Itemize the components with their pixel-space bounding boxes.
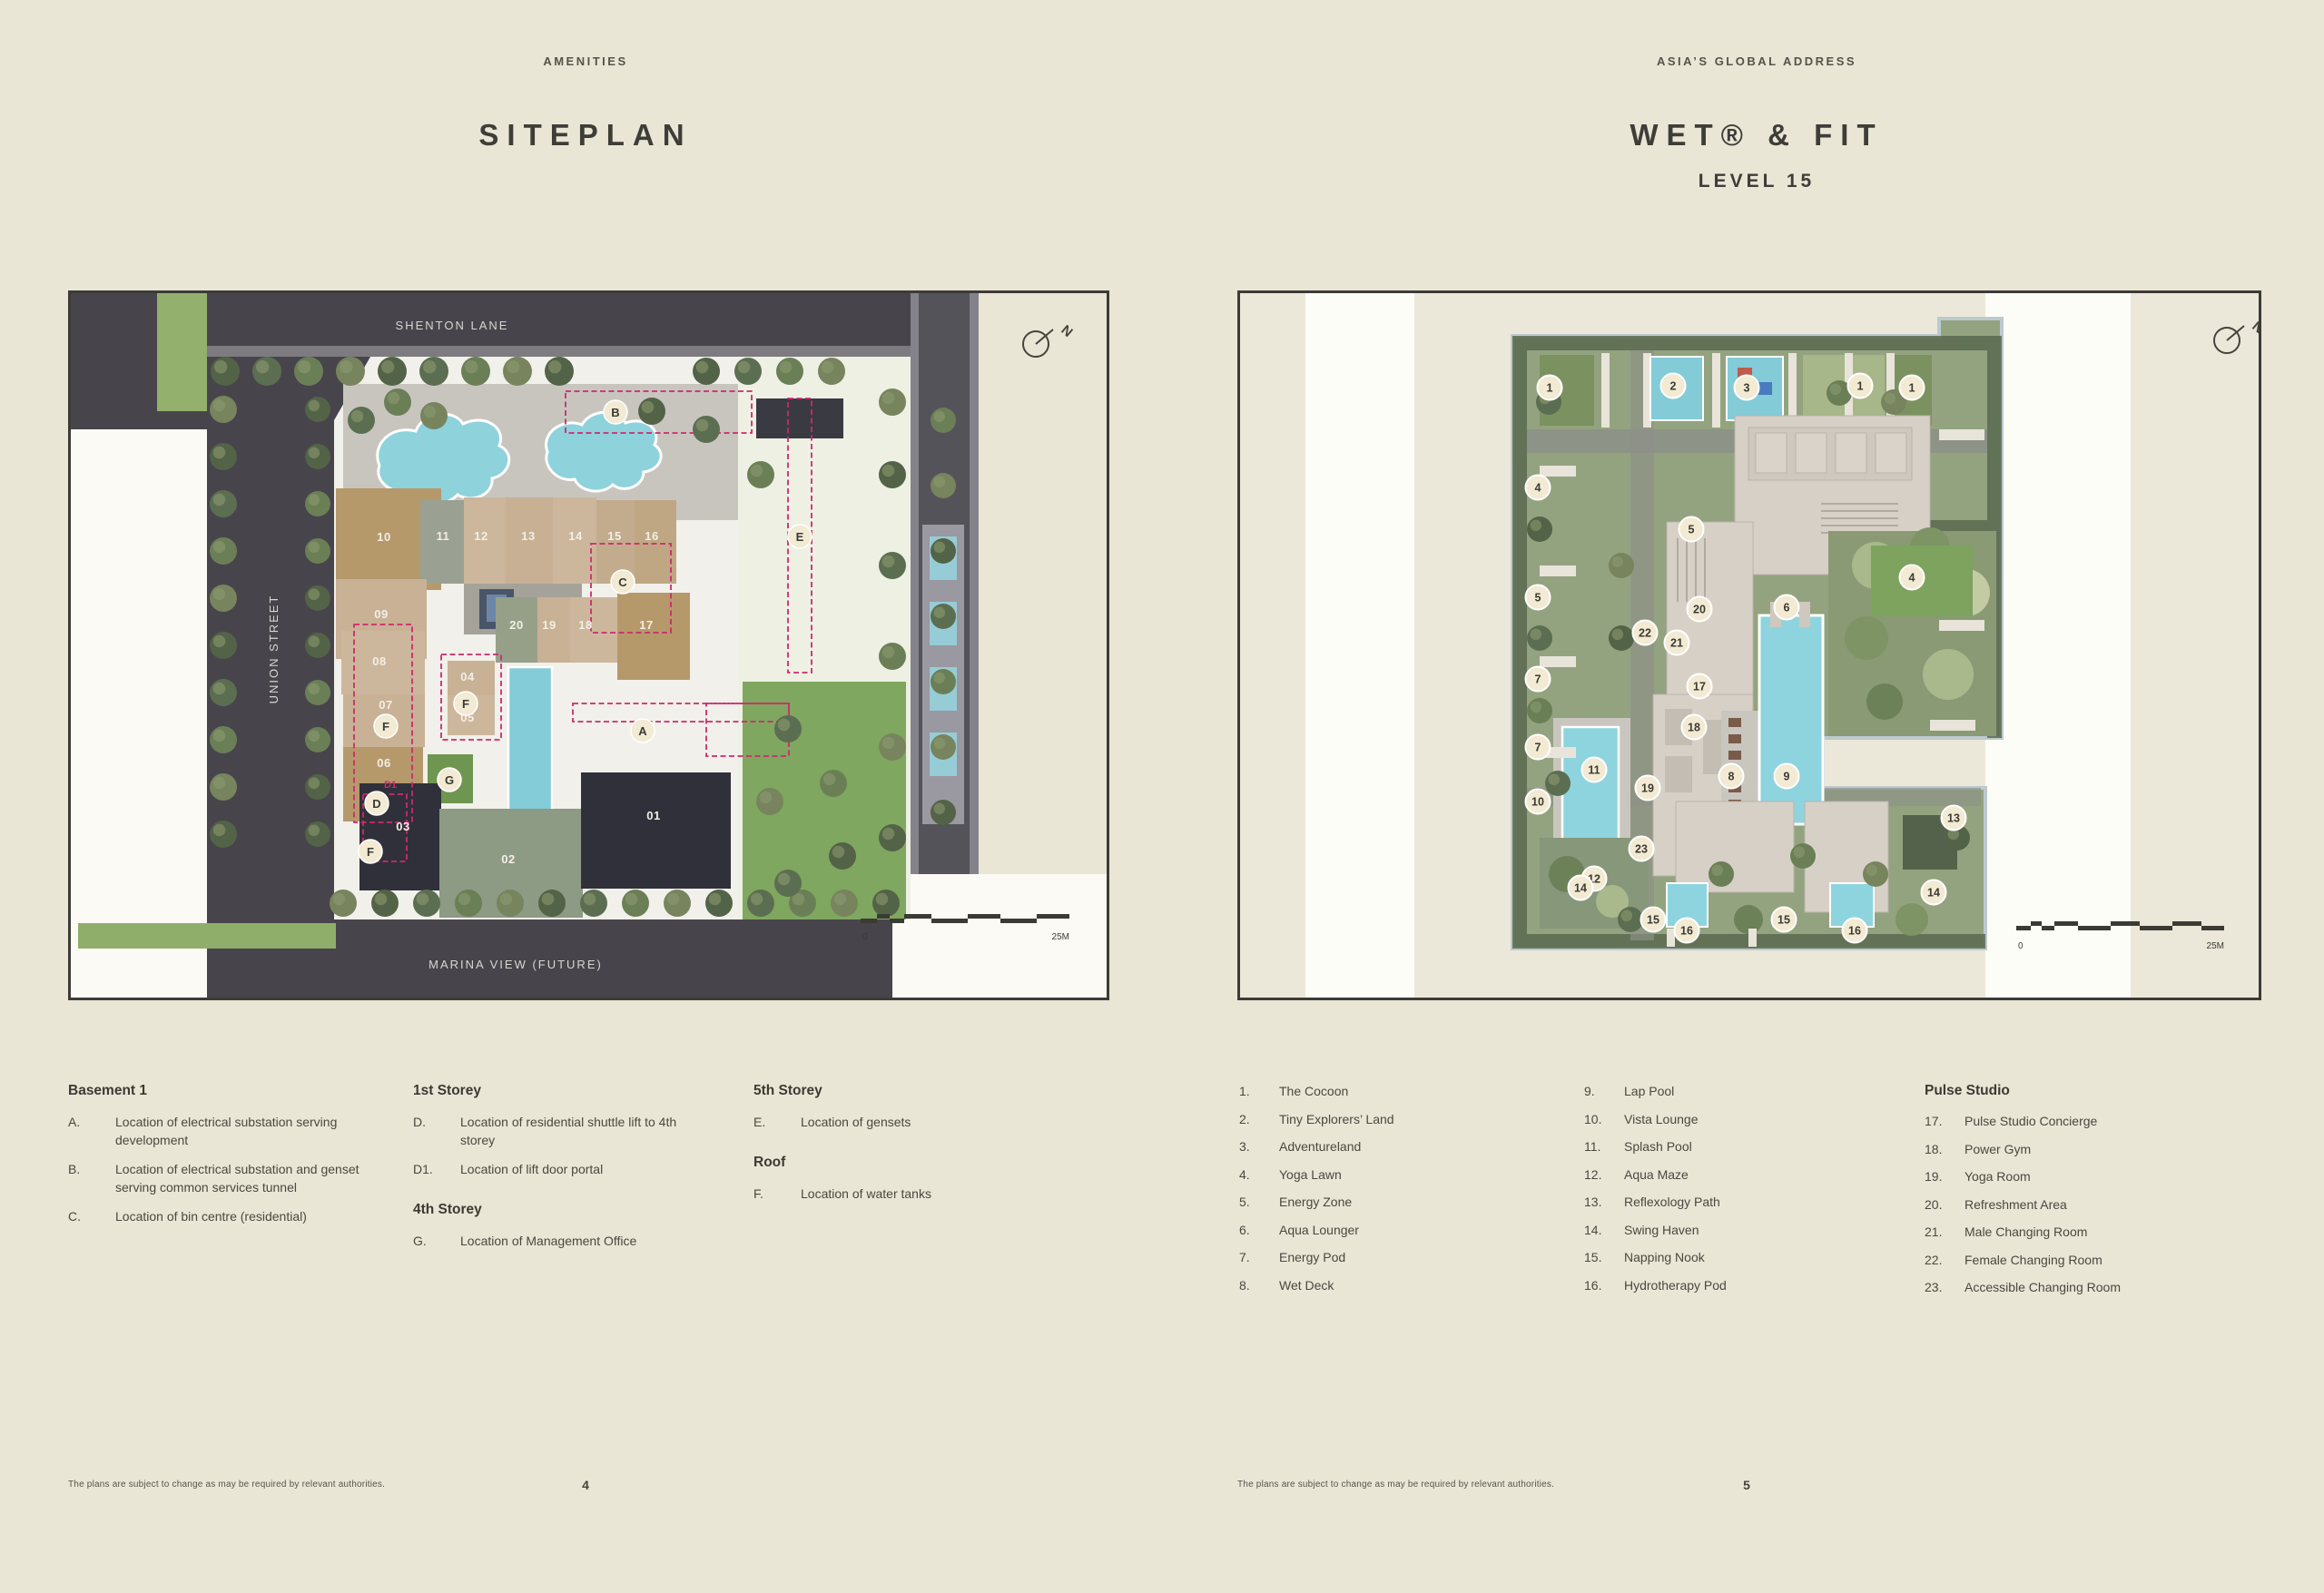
unit-number-label: D1: [384, 780, 397, 791]
tree-icon: [210, 585, 237, 612]
tree-icon: [210, 632, 237, 659]
legend-item-key: 5.: [1239, 1194, 1279, 1210]
legend-item-key: G.: [413, 1232, 460, 1250]
legend-item-text: Location of Management Office: [460, 1232, 713, 1250]
legend-item-key: 21.: [1925, 1224, 1965, 1240]
legend-item: 11.Splash Pool: [1584, 1138, 1897, 1155]
tree-icon: [931, 538, 956, 564]
legend-item-key: D.: [413, 1113, 460, 1149]
legend-item: 6.Aqua Lounger: [1239, 1222, 1552, 1238]
legend-item: 16.Hydrotherapy Pod: [1584, 1277, 1897, 1293]
svg-text:F: F: [462, 697, 469, 711]
tree-icon: [820, 770, 847, 797]
legend-item-key: 15.: [1584, 1249, 1624, 1265]
tree-icon: [879, 733, 906, 761]
legend-item: 13.Reflexology Path: [1584, 1194, 1897, 1210]
tree-icon: [210, 726, 237, 753]
svg-text:C: C: [618, 575, 627, 589]
legend-item-key: 2.: [1239, 1111, 1279, 1127]
tree-icon: [879, 388, 906, 416]
tree-icon: [774, 870, 802, 897]
amenity-marker-16: 16: [1843, 919, 1867, 943]
tree-icon: [252, 357, 281, 386]
location-marker-F: F: [359, 840, 382, 863]
tree-icon: [931, 669, 956, 694]
svg-text:4: 4: [1909, 572, 1915, 585]
legend-item-text: Location of residential shuttle lift to …: [460, 1113, 713, 1149]
tree-icon: [664, 890, 691, 917]
svg-text:6: 6: [1784, 602, 1790, 615]
amenities-legend-column-2: 9.Lap Pool10.Vista Lounge11.Splash Pool1…: [1584, 1083, 1897, 1317]
tree-icon: [305, 727, 330, 752]
amenity-marker-16: 16: [1675, 919, 1699, 943]
tree-icon: [210, 821, 237, 848]
legend-item-key: 6.: [1239, 1222, 1279, 1238]
legend-item: 9.Lap Pool: [1584, 1083, 1897, 1099]
legend-item-text: Splash Pool: [1624, 1138, 1692, 1155]
amenities-legend-column-3: Pulse Studio17.Pulse Studio Concierge18.…: [1925, 1083, 2260, 1319]
tree-icon: [1863, 861, 1888, 887]
tree-icon: [705, 890, 733, 917]
unit-number-label: 03: [396, 820, 409, 833]
amenity-marker-5: 5: [1526, 585, 1551, 610]
unit-number-label: 14: [568, 529, 583, 543]
legend-item-text: Reflexology Path: [1624, 1194, 1720, 1210]
tree-icon: [294, 357, 323, 386]
legend-item-key: 16.: [1584, 1277, 1624, 1293]
unit-number-label: 20: [509, 618, 523, 632]
tree-icon: [210, 537, 237, 565]
amenity-marker-17: 17: [1688, 674, 1712, 699]
svg-text:14: 14: [1574, 882, 1587, 895]
legend-item-text: Napping Nook: [1624, 1249, 1705, 1265]
legend-item: 8.Wet Deck: [1239, 1277, 1552, 1293]
tree-icon: [348, 407, 375, 434]
legend-heading: Pulse Studio: [1925, 1083, 2260, 1099]
svg-text:17: 17: [1693, 681, 1706, 693]
tree-icon: [210, 773, 237, 801]
unit-number-label: 10: [377, 530, 390, 544]
tree-icon: [879, 552, 906, 579]
tree-icon: [931, 734, 956, 760]
tree-icon: [1790, 843, 1816, 869]
tree-icon: [461, 357, 490, 386]
legend-item-text: Yoga Lawn: [1279, 1166, 1342, 1183]
legend-block: RoofF.Location of water tanks: [753, 1155, 1026, 1203]
svg-text:5: 5: [1689, 524, 1695, 536]
legend-item-key: 19.: [1925, 1168, 1965, 1185]
amenity-marker-21: 21: [1665, 631, 1689, 655]
tree-icon: [693, 416, 720, 443]
legend-item: 5.Energy Zone: [1239, 1194, 1552, 1210]
legend-item-text: Energy Pod: [1279, 1249, 1345, 1265]
svg-text:1: 1: [1909, 382, 1915, 395]
legend-item: 3.Adventureland: [1239, 1138, 1552, 1155]
legend-item-key: 18.: [1925, 1141, 1965, 1157]
location-marker-G: G: [438, 768, 461, 792]
amenity-marker-8: 8: [1719, 764, 1744, 789]
amenity-marker-18: 18: [1682, 715, 1707, 740]
scale-label-end: 25M: [1052, 932, 1069, 942]
legend-item: 14.Swing Haven: [1584, 1222, 1897, 1238]
amenity-marker-22: 22: [1633, 621, 1658, 645]
tree-icon: [1527, 516, 1552, 542]
tree-icon: [1545, 771, 1571, 796]
tree-icon: [1527, 698, 1552, 723]
tree-icon: [747, 461, 774, 488]
legend-item: 22.Female Changing Room: [1925, 1252, 2260, 1268]
legend-item-text: Swing Haven: [1624, 1222, 1699, 1238]
legend-item-key: 8.: [1239, 1277, 1279, 1293]
tree-icon: [378, 357, 407, 386]
legend-heading: Roof: [753, 1155, 1026, 1171]
legend-block: 1st StoreyD.Location of residential shut…: [413, 1083, 713, 1178]
unit-number-label: 15: [607, 529, 621, 543]
location-marker-D: D: [365, 792, 389, 815]
svg-text:1: 1: [1857, 380, 1864, 393]
legend-item-key: 10.: [1584, 1111, 1624, 1127]
unit-number-label: 07: [379, 698, 392, 712]
svg-text:F: F: [382, 720, 389, 733]
unit-number-label: 19: [542, 618, 556, 632]
legend-item-text: Yoga Room: [1965, 1168, 2031, 1185]
tree-icon: [210, 679, 237, 706]
left-footnote: The plans are subject to change as may b…: [68, 1480, 385, 1490]
right-footnote: The plans are subject to change as may b…: [1237, 1480, 1554, 1490]
amenity-marker-1: 1: [1538, 376, 1562, 400]
amenity-marker-20: 20: [1688, 597, 1712, 622]
tree-icon: [693, 358, 720, 385]
amenity-marker-6: 6: [1775, 595, 1799, 620]
right-page-subtitle: LEVEL 15: [1393, 171, 2120, 192]
legend-item-key: 12.: [1584, 1166, 1624, 1183]
legend-item: B.Location of electrical substation and …: [68, 1160, 381, 1196]
tree-icon: [1609, 625, 1634, 651]
svg-text:15: 15: [1777, 914, 1790, 927]
legend-item: C.Location of bin centre (residential): [68, 1207, 381, 1225]
tree-icon: [774, 715, 802, 742]
legend-item: 12.Aqua Maze: [1584, 1166, 1897, 1183]
tree-icon: [872, 890, 900, 917]
svg-text:19: 19: [1641, 782, 1654, 795]
tree-icon: [931, 408, 956, 433]
legend-heading: 1st Storey: [413, 1083, 713, 1099]
legend-item: 17.Pulse Studio Concierge: [1925, 1113, 2260, 1129]
siteplan-legend-column-2: 1st StoreyD.Location of residential shut…: [413, 1083, 713, 1273]
legend-item: 10.Vista Lounge: [1584, 1111, 1897, 1127]
legend-heading: Basement 1: [68, 1083, 381, 1099]
tree-icon: [210, 396, 237, 423]
tree-icon: [1709, 861, 1734, 887]
amenity-marker-19: 19: [1636, 776, 1660, 801]
tree-icon: [455, 890, 482, 917]
unit-number-label: 18: [578, 618, 592, 632]
legend-item-text: Aqua Maze: [1624, 1166, 1689, 1183]
location-marker-F: F: [374, 714, 398, 738]
legend-item: D1.Location of lift door portal: [413, 1160, 713, 1178]
legend-item-text: Location of gensets: [801, 1113, 1026, 1131]
amenity-marker-1: 1: [1900, 376, 1925, 400]
legend-item: 2.Tiny Explorers’ Land: [1239, 1111, 1552, 1127]
siteplan-legend-column-3: 5th StoreyE.Location of gensetsRoofF.Loc…: [753, 1083, 1026, 1226]
svg-text:G: G: [445, 773, 454, 787]
right-page-title: WET® & FIT: [1393, 118, 2120, 152]
tree-icon: [305, 397, 330, 422]
tree-icon: [747, 890, 774, 917]
tree-icon: [538, 890, 566, 917]
legend-item: 15.Napping Nook: [1584, 1249, 1897, 1265]
tree-icon: [829, 842, 856, 870]
legend-item-key: 11.: [1584, 1138, 1624, 1155]
legend-item: E.Location of gensets: [753, 1113, 1026, 1131]
legend-item-key: E.: [753, 1113, 801, 1131]
siteplan-map: SHENTON LANE UNION STREET MARINA VIEW (F…: [68, 290, 1109, 1000]
legend-item-key: 7.: [1239, 1249, 1279, 1265]
tree-icon: [734, 358, 762, 385]
legend-item-text: Location of lift door portal: [460, 1160, 713, 1178]
tree-icon: [497, 890, 524, 917]
tree-icon: [1618, 907, 1643, 932]
legend-item-text: Pulse Studio Concierge: [1965, 1113, 2097, 1129]
legend-item-text: Tiny Explorers’ Land: [1279, 1111, 1394, 1127]
unit-number-label: 02: [501, 852, 515, 866]
unit-number-label: 16: [645, 529, 658, 543]
legend-item-text: Vista Lounge: [1624, 1111, 1698, 1127]
svg-text:21: 21: [1670, 637, 1683, 650]
svg-text:B: B: [611, 406, 619, 419]
svg-text:18: 18: [1688, 722, 1700, 734]
amenity-marker-2: 2: [1661, 374, 1686, 398]
svg-text:8: 8: [1728, 771, 1735, 783]
amenity-marker-7: 7: [1526, 735, 1551, 760]
amenities-legend-column-1: 1.The Cocoon2.Tiny Explorers’ Land3.Adve…: [1239, 1083, 1552, 1317]
site-lap-pool: [508, 667, 552, 826]
tree-icon: [384, 388, 411, 416]
amenity-marker-9: 9: [1775, 764, 1799, 789]
legend-item-key: 4.: [1239, 1166, 1279, 1183]
left-page-number: 4: [495, 1478, 676, 1492]
right-page-eyebrow: ASIA’S GLOBAL ADDRESS: [1484, 54, 2029, 68]
unit-number-label: 01: [646, 809, 660, 822]
tree-icon: [776, 358, 803, 385]
legend-item: 18.Power Gym: [1925, 1141, 2260, 1157]
amenity-marker-14: 14: [1922, 880, 1946, 905]
legend-item-text: Male Changing Room: [1965, 1224, 2087, 1240]
svg-text:9: 9: [1784, 771, 1790, 783]
legend-item-text: Female Changing Room: [1965, 1252, 2102, 1268]
legend-item: 20.Refreshment Area: [1925, 1196, 2260, 1213]
svg-text:7: 7: [1535, 674, 1541, 686]
lap-pool: [1759, 615, 1823, 824]
tree-icon: [210, 490, 237, 517]
location-marker-C: C: [611, 570, 635, 594]
tree-icon: [305, 491, 330, 516]
location-marker-E: E: [788, 525, 812, 548]
legend-item-key: 9.: [1584, 1083, 1624, 1099]
svg-text:13: 13: [1947, 812, 1960, 825]
svg-text:23: 23: [1635, 843, 1648, 856]
legend-item-text: Energy Zone: [1279, 1194, 1352, 1210]
right-page-number: 5: [1656, 1478, 1837, 1492]
legend-item: 19.Yoga Room: [1925, 1168, 2260, 1185]
legend-block: Pulse Studio17.Pulse Studio Concierge18.…: [1925, 1083, 2260, 1295]
tree-icon: [210, 443, 237, 470]
legend-item-text: Aqua Lounger: [1279, 1222, 1359, 1238]
left-page-title: SITEPLAN: [222, 118, 949, 152]
legend-item-key: C.: [68, 1207, 115, 1225]
svg-text:16: 16: [1848, 925, 1861, 938]
unit-number-label: 12: [474, 529, 487, 543]
siteplan-legend-column-1: Basement 1A.Location of electrical subst…: [68, 1083, 381, 1249]
unit-number-label: 17: [639, 618, 653, 632]
amenity-marker-5: 5: [1679, 517, 1704, 542]
tree-icon: [879, 643, 906, 670]
legend-block: 1.The Cocoon2.Tiny Explorers’ Land3.Adve…: [1239, 1083, 1552, 1293]
tree-icon: [879, 824, 906, 851]
amenity-marker-4: 4: [1900, 565, 1925, 590]
legend-item-key: 17.: [1925, 1113, 1965, 1129]
tree-icon: [305, 821, 330, 847]
svg-text:E: E: [796, 530, 804, 544]
legend-item: F.Location of water tanks: [753, 1185, 1026, 1203]
legend-item: 1.The Cocoon: [1239, 1083, 1552, 1099]
amenity-marker-4: 4: [1526, 476, 1551, 500]
tree-icon: [931, 473, 956, 498]
amenity-marker-7: 7: [1526, 667, 1551, 692]
legend-item-key: F.: [753, 1185, 801, 1203]
svg-text:5: 5: [1535, 592, 1541, 605]
legend-block: 5th StoreyE.Location of gensets: [753, 1083, 1026, 1131]
street-label-top: SHENTON LANE: [396, 319, 509, 332]
unit-number-label: 11: [437, 529, 450, 543]
tree-icon: [756, 788, 783, 815]
unit-number-label: 08: [372, 654, 386, 668]
amenity-marker-10: 10: [1526, 790, 1551, 814]
tree-icon: [305, 633, 330, 658]
tree-icon: [1527, 625, 1552, 651]
scale-label-start: 0: [2018, 941, 2024, 951]
legend-item: A.Location of electrical substation serv…: [68, 1113, 381, 1149]
legend-item-key: A.: [68, 1113, 115, 1149]
legend-item-key: 14.: [1584, 1222, 1624, 1238]
tree-icon: [305, 680, 330, 705]
svg-text:D: D: [372, 797, 380, 811]
svg-text:16: 16: [1680, 925, 1693, 938]
amenity-marker-23: 23: [1630, 837, 1654, 861]
location-marker-F: F: [454, 692, 478, 715]
svg-text:7: 7: [1535, 742, 1541, 754]
legend-heading: 4th Storey: [413, 1202, 713, 1218]
right-garden: [1828, 527, 1996, 736]
legend-item-text: Wet Deck: [1279, 1277, 1334, 1293]
svg-text:11: 11: [1588, 764, 1600, 777]
legend-item: 23.Accessible Changing Room: [1925, 1279, 2260, 1295]
tree-icon: [818, 358, 845, 385]
amenity-marker-11: 11: [1582, 758, 1607, 782]
street-label-left: UNION STREET: [267, 595, 281, 704]
amenity-marker-15: 15: [1641, 908, 1666, 932]
legend-item-text: Accessible Changing Room: [1965, 1279, 2121, 1295]
svg-text:4: 4: [1535, 482, 1541, 495]
legend-item-text: Location of electrical substation servin…: [115, 1113, 381, 1149]
legend-item-text: Location of bin centre (residential): [115, 1207, 381, 1225]
tree-icon: [420, 402, 448, 429]
legend-item-key: 1.: [1239, 1083, 1279, 1099]
legend-item-text: Adventureland: [1279, 1138, 1361, 1155]
legend-item: G.Location of Management Office: [413, 1232, 713, 1250]
svg-text:1: 1: [1547, 382, 1553, 395]
location-marker-A: A: [631, 719, 655, 742]
tree-icon: [305, 774, 330, 800]
legend-block: 4th StoreyG.Location of Management Offic…: [413, 1202, 713, 1250]
left-page-eyebrow: AMENITIES: [313, 54, 858, 68]
amenity-marker-14: 14: [1569, 876, 1593, 900]
tree-icon: [622, 890, 649, 917]
amenity-marker-15: 15: [1772, 908, 1797, 932]
tree-icon: [831, 890, 858, 917]
legend-item: D.Location of residential shuttle lift t…: [413, 1113, 713, 1149]
tree-icon: [305, 538, 330, 564]
amenity-marker-1: 1: [1848, 374, 1873, 398]
unit-number-label: 09: [374, 607, 388, 621]
tree-icon: [503, 357, 532, 386]
tree-icon: [336, 357, 365, 386]
scale-label-start: 0: [862, 932, 868, 942]
legend-block: 9.Lap Pool10.Vista Lounge11.Splash Pool1…: [1584, 1083, 1897, 1293]
svg-text:20: 20: [1693, 604, 1706, 616]
tree-icon: [931, 604, 956, 629]
tree-icon: [545, 357, 574, 386]
svg-text:A: A: [638, 724, 647, 738]
legend-item: 21.Male Changing Room: [1925, 1224, 2260, 1240]
tree-icon: [419, 357, 448, 386]
legend-item-text: Power Gym: [1965, 1141, 2031, 1157]
legend-item-key: B.: [68, 1160, 115, 1196]
level15-floorplan-map: N 0 25M 12311454520622217171878910111923…: [1237, 290, 2261, 1000]
tree-icon: [580, 890, 607, 917]
legend-item-key: 22.: [1925, 1252, 1965, 1268]
legend-item-key: 3.: [1239, 1138, 1279, 1155]
tree-icon: [879, 461, 906, 488]
tree-icon: [371, 890, 399, 917]
svg-text:3: 3: [1744, 382, 1750, 395]
svg-text:14: 14: [1927, 887, 1940, 900]
scale-label-end: 25M: [2207, 941, 2224, 951]
legend-item-key: 20.: [1925, 1196, 1965, 1213]
legend-item: 7.Energy Pod: [1239, 1249, 1552, 1265]
legend-item-key: 13.: [1584, 1194, 1624, 1210]
amenity-marker-3: 3: [1735, 376, 1759, 400]
legend-item-text: Refreshment Area: [1965, 1196, 2067, 1213]
legend-item-text: Hydrotherapy Pod: [1624, 1277, 1727, 1293]
legend-item-key: 23.: [1925, 1279, 1965, 1295]
svg-text:22: 22: [1639, 627, 1651, 640]
svg-text:2: 2: [1670, 380, 1677, 393]
tree-icon: [211, 357, 240, 386]
tree-icon: [1609, 553, 1634, 578]
tree-icon: [413, 890, 440, 917]
unit-number-label: 04: [460, 670, 475, 683]
svg-text:F: F: [367, 845, 374, 859]
location-marker-B: B: [604, 400, 627, 424]
street-label-bottom: MARINA VIEW (FUTURE): [428, 958, 603, 971]
legend-block: Basement 1A.Location of electrical subst…: [68, 1083, 381, 1225]
svg-text:10: 10: [1531, 796, 1544, 809]
tree-icon: [305, 444, 330, 469]
legend-item-text: Lap Pool: [1624, 1083, 1674, 1099]
legend-item: 4.Yoga Lawn: [1239, 1166, 1552, 1183]
legend-heading: 5th Storey: [753, 1083, 1026, 1099]
